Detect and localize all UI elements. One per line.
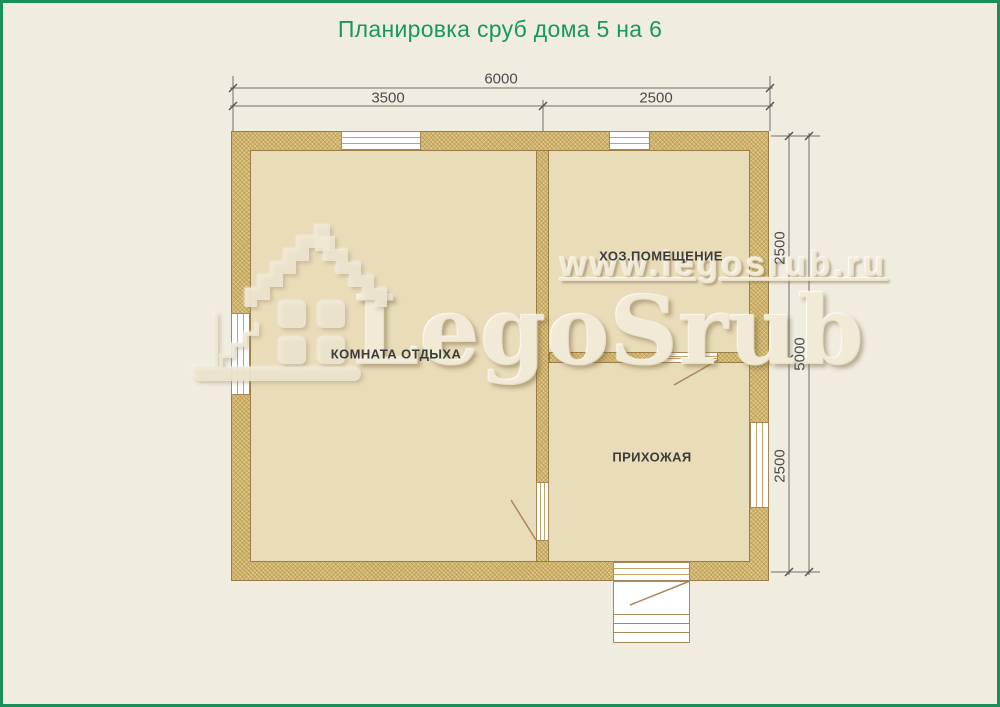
window-top-left (341, 131, 421, 150)
dimension-height-lower: 2500 (772, 449, 789, 482)
dimension-width-left: 3500 (371, 90, 404, 107)
dimension-width-total: 6000 (484, 71, 517, 88)
dimension-height-upper: 2500 (772, 231, 789, 264)
porch-steps (613, 581, 690, 643)
window-top-right (609, 131, 650, 150)
door-opening-rest-room (536, 482, 549, 541)
room-label-utility-room: ХОЗ.ПОМЕЩЕНИЕ (599, 249, 723, 264)
room-label-hallway: ПРИХОЖАЯ (612, 450, 691, 465)
room-label-rest-room: КОМНАТА ОТДЫХА (331, 347, 462, 362)
door-opening-utility-room (656, 352, 718, 363)
dimension-height-total: 5000 (792, 337, 809, 370)
entrance-door-opening (613, 562, 690, 581)
window-left-wall (231, 313, 250, 395)
partition-wall-horizontal (549, 352, 750, 363)
dimension-width-right: 2500 (639, 90, 672, 107)
page-title: Планировка сруб дома 5 на 6 (3, 16, 997, 43)
window-right-wall (750, 422, 769, 508)
floor-plan-page: Планировка сруб дома 5 на 6 (0, 0, 1000, 707)
